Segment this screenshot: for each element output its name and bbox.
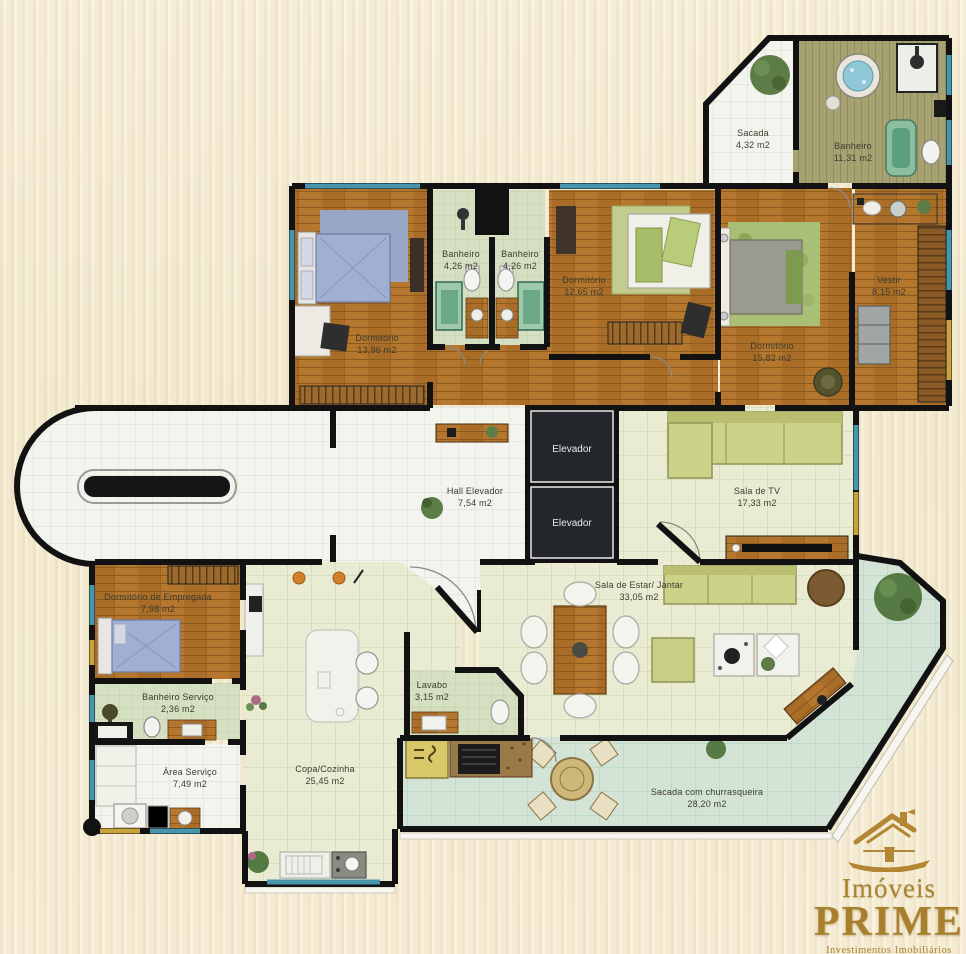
elevator-2-label: Elevador xyxy=(552,518,591,530)
floor-plan-page: Sacada 4,32 m2 Banheiro 11,31 m2 Dormitó… xyxy=(0,0,966,954)
logo-line3: Investimentos Imobiliários xyxy=(812,945,966,954)
agency-logo: Imóveis PRIME Investimentos Imobiliários xyxy=(812,808,966,954)
wall-corner-post xyxy=(83,818,101,836)
elevator-block xyxy=(525,405,619,563)
logo-house-icon xyxy=(834,808,944,872)
logo-line2: PRIME xyxy=(812,904,966,942)
elevator-1-label: Elevador xyxy=(552,444,591,456)
duct-shaft xyxy=(475,186,509,235)
